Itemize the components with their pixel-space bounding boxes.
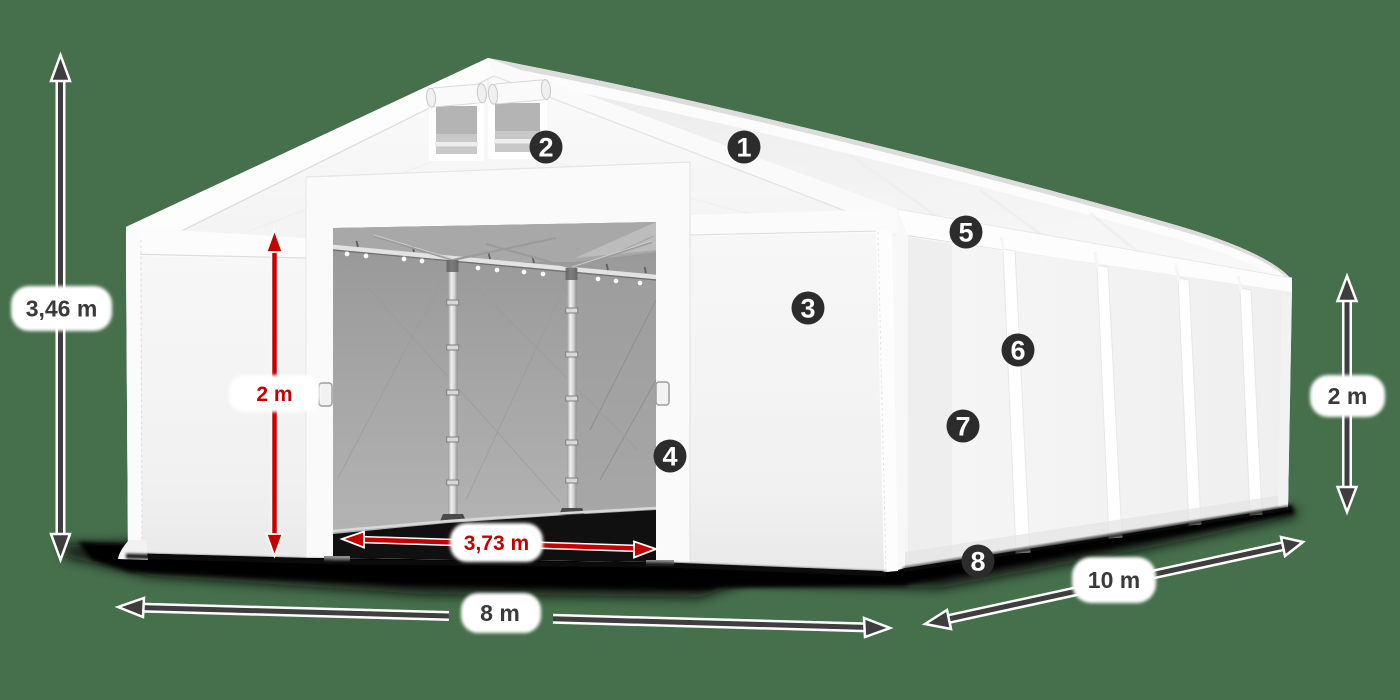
svg-text:8: 8 <box>970 547 985 577</box>
svg-text:3: 3 <box>800 294 815 324</box>
svg-text:3,46 m: 3,46 m <box>26 296 98 322</box>
svg-text:2 m: 2 m <box>256 383 292 406</box>
svg-text:8 m: 8 m <box>480 600 520 626</box>
svg-text:6: 6 <box>1010 336 1025 366</box>
svg-text:4: 4 <box>662 442 677 472</box>
svg-text:3,73 m: 3,73 m <box>464 532 529 555</box>
svg-text:2 m: 2 m <box>1328 383 1368 409</box>
svg-text:10 m: 10 m <box>1088 567 1140 593</box>
svg-text:2: 2 <box>538 133 553 163</box>
svg-text:1: 1 <box>736 133 751 163</box>
svg-text:7: 7 <box>955 412 970 442</box>
svg-text:5: 5 <box>958 218 973 248</box>
